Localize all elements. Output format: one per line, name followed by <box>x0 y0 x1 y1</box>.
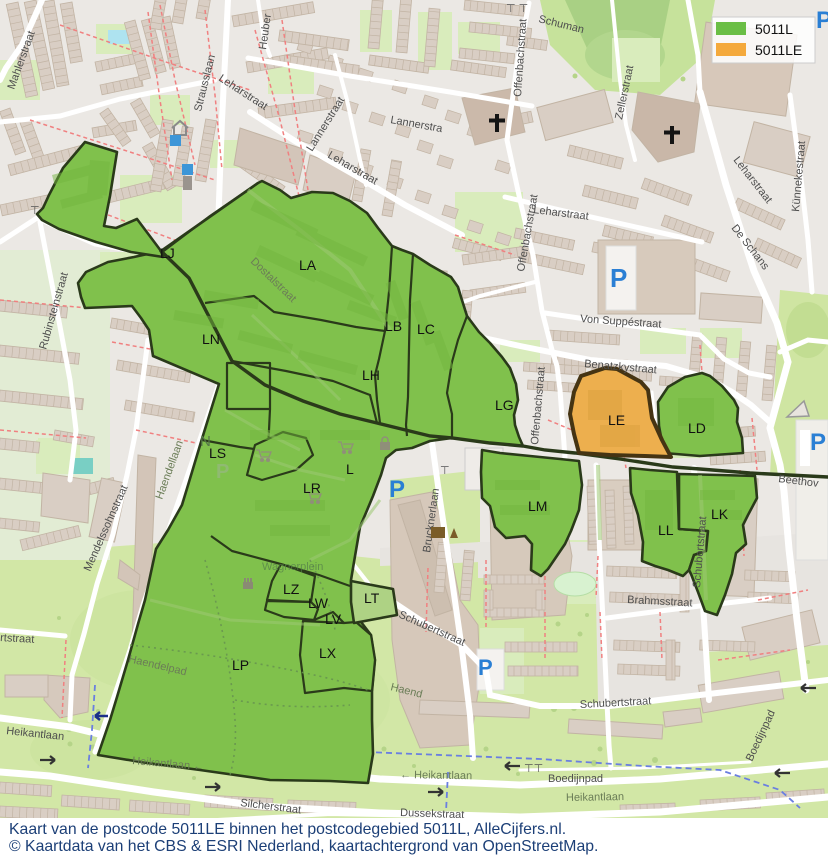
svg-text:LW: LW <box>308 595 329 611</box>
svg-text:Wagnerplein: Wagnerplein <box>262 561 323 573</box>
svg-text:P: P <box>216 461 229 483</box>
svg-text:LX: LX <box>319 645 337 661</box>
svg-text:LR: LR <box>303 480 321 496</box>
svg-text:⊤⊤: ⊤⊤ <box>524 763 543 775</box>
svg-text:P: P <box>389 476 405 503</box>
svg-text:LZ: LZ <box>283 581 300 597</box>
svg-text:LN: LN <box>202 331 220 347</box>
svg-text:⊤ ⊤: ⊤ ⊤ <box>506 3 528 15</box>
svg-text:LC: LC <box>417 321 435 337</box>
svg-text:LL: LL <box>658 522 674 538</box>
svg-text:⊤: ⊤ <box>30 205 40 217</box>
svg-text:rtstraat: rtstraat <box>0 632 35 646</box>
svg-text:LG: LG <box>495 397 514 413</box>
svg-text:LT: LT <box>364 590 380 606</box>
svg-text:LB: LB <box>385 318 402 334</box>
svg-text:L: L <box>346 461 354 477</box>
svg-text:Boedijnpad: Boedijnpad <box>548 773 603 785</box>
svg-text:← Heikantlaan: ← Heikantlaan <box>400 769 472 782</box>
svg-text:LV: LV <box>325 611 342 627</box>
svg-text:P: P <box>810 429 826 456</box>
svg-text:5011LE: 5011LE <box>755 42 802 58</box>
svg-text:LK: LK <box>711 506 729 522</box>
svg-text:5011L: 5011L <box>755 21 793 37</box>
svg-text:LJ: LJ <box>160 245 175 261</box>
svg-text:P: P <box>816 7 828 34</box>
svg-text:Dussekstraat: Dussekstraat <box>400 807 465 818</box>
svg-text:LA: LA <box>299 257 317 273</box>
svg-text:⊤: ⊤ <box>440 465 450 477</box>
svg-text:LP: LP <box>232 657 249 673</box>
svg-text:Heikantlaan: Heikantlaan <box>566 791 624 804</box>
svg-text:LH: LH <box>362 367 380 383</box>
svg-text:P: P <box>478 655 493 680</box>
svg-text:P: P <box>610 263 627 293</box>
svg-text:LM: LM <box>528 498 547 514</box>
svg-text:LD: LD <box>688 420 706 436</box>
svg-text:LS: LS <box>209 445 226 461</box>
svg-text:LE: LE <box>608 412 625 428</box>
